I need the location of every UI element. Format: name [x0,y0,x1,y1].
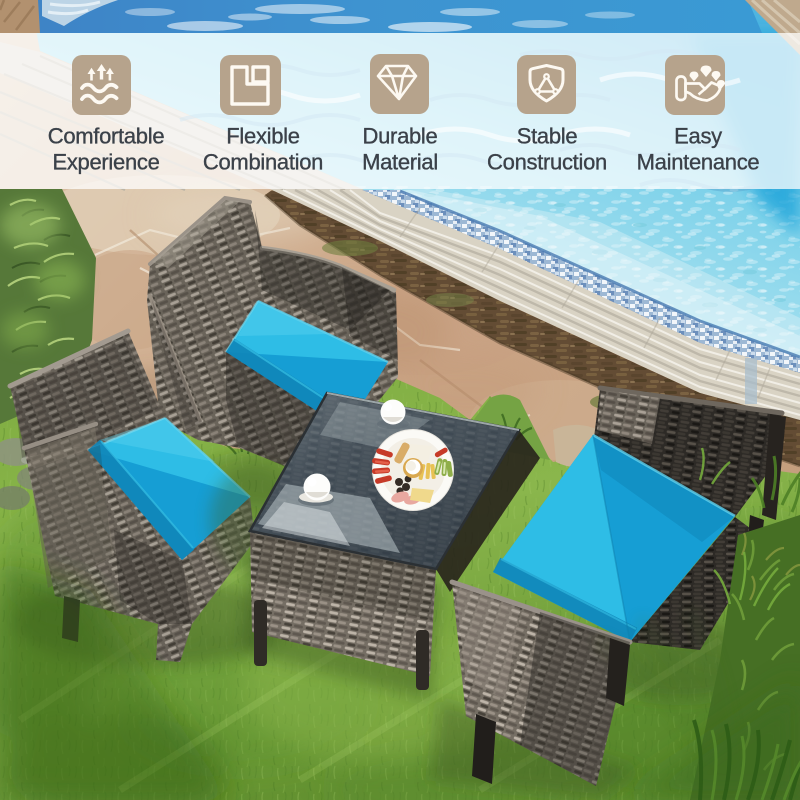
svg-text:Durable: Durable [363,124,438,149]
svg-text:Maintenance: Maintenance [637,150,760,175]
svg-text:Combination: Combination [203,150,323,175]
svg-text:Stable: Stable [517,124,578,149]
svg-text:Construction: Construction [487,150,607,175]
svg-text:Experience: Experience [52,150,159,175]
svg-text:Material: Material [362,150,438,175]
svg-text:Flexible: Flexible [226,124,299,149]
svg-text:Comfortable: Comfortable [48,124,165,149]
svg-text:Easy: Easy [674,124,722,149]
